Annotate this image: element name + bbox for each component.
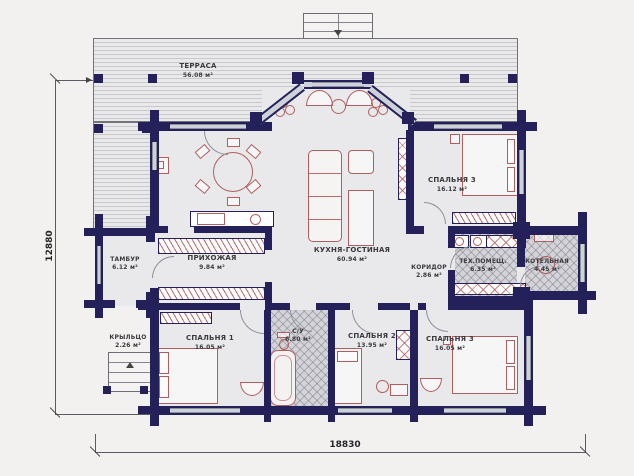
log-end-stub <box>514 406 546 415</box>
stove <box>197 213 225 225</box>
room-label-corridor: КОРИДОР 2.86 м² <box>404 264 454 280</box>
window <box>444 408 506 413</box>
window <box>434 124 502 129</box>
room-name: КОТЕЛЬНАЯ <box>525 258 569 265</box>
room-name: ТЕХ.ПОМЕЩ. <box>459 258 507 265</box>
chair <box>227 138 240 147</box>
room-name: СПАЛЬНЯ 2 <box>348 332 396 340</box>
room-area: 16.12 м² <box>437 186 467 193</box>
sofa <box>308 150 342 242</box>
pillow <box>337 351 358 362</box>
pillow <box>507 167 515 192</box>
log-end-stub <box>146 216 155 242</box>
wall <box>450 303 533 310</box>
log-end-stub <box>264 400 271 422</box>
washer-drum-2 <box>473 237 482 246</box>
log-end-stub <box>328 400 335 422</box>
nightstand <box>450 134 460 144</box>
hallway-closet <box>158 287 265 300</box>
wall <box>328 310 335 406</box>
room-label-porch: КРЫЛЬЦО 2.26 м² <box>104 334 152 350</box>
wall <box>406 226 424 234</box>
plant <box>285 105 295 115</box>
plant <box>368 107 378 117</box>
pillow <box>159 352 169 374</box>
log-end-stub <box>84 228 112 236</box>
wall <box>410 310 418 406</box>
window <box>166 124 246 129</box>
window <box>526 336 531 380</box>
room-label-boiler: КОТЕЛЬНАЯ 4.45 м² <box>518 258 576 274</box>
log-end-stub <box>410 400 418 422</box>
dim-arrow-icon <box>86 77 92 83</box>
room-name: КОРИДОР <box>411 264 447 271</box>
terrace-name: ТЕРРАСА <box>179 62 216 70</box>
room-area: 60.94 м² <box>337 256 367 263</box>
log-end-stub <box>570 291 596 300</box>
post <box>460 74 469 83</box>
room-name: ТАМБУР <box>110 256 140 263</box>
room-name: ПРИХОЖАЯ <box>187 254 236 262</box>
log-end-stub <box>138 122 170 131</box>
bathtub-inner <box>274 355 292 401</box>
room-area: 6.12 м² <box>112 264 138 271</box>
washer-drum <box>455 237 464 246</box>
bedroom3-closet <box>452 212 516 224</box>
dim-extension <box>55 414 151 415</box>
room-name: КУХНЯ-ГОСТИНАЯ <box>314 246 390 254</box>
bay-post <box>362 72 374 84</box>
dim-label-height: 12880 <box>45 218 55 274</box>
room-area: 4.45 м² <box>534 266 560 273</box>
wall <box>448 226 517 234</box>
post <box>508 74 517 83</box>
wall <box>194 226 272 233</box>
log-end-stub <box>509 122 537 131</box>
log-end-stub <box>578 212 587 238</box>
side-table <box>331 99 346 114</box>
hallway-wardrobe <box>158 238 265 254</box>
room-area: 2.26 м² <box>115 342 141 349</box>
wall <box>378 303 410 310</box>
room-label-vestibule: ТАМБУР 6.12 м² <box>98 256 152 272</box>
room-name: КРЫЛЬЦО <box>109 334 146 341</box>
kitchen-sink <box>250 214 261 225</box>
log-end-stub <box>513 287 530 304</box>
room-label-bedroom3-top: СПАЛЬНЯ 3 16.12 м² <box>408 176 496 194</box>
wall <box>264 310 271 406</box>
room-area: 16.05 м² <box>195 344 225 351</box>
room-area: 9.84 м² <box>199 264 225 271</box>
desk <box>390 384 408 396</box>
wall <box>265 226 272 250</box>
wall <box>316 303 350 310</box>
log-end-stub <box>138 303 164 310</box>
log-end-stub <box>513 222 530 239</box>
bedroom1-closet <box>160 312 212 324</box>
room-name: СПАЛЬНЯ 1 <box>186 334 234 342</box>
stairs-down-arrow-icon <box>334 30 342 36</box>
dim-line-vertical <box>55 80 56 415</box>
wall <box>448 234 455 248</box>
post <box>94 74 103 83</box>
pillow <box>506 340 515 364</box>
room-area: 6.35 м² <box>470 266 496 273</box>
room-label-bedroom2: СПАЛЬНЯ 2 13.95 м² <box>328 332 416 350</box>
wall <box>418 303 426 310</box>
window <box>312 82 364 87</box>
coffee-table <box>348 190 374 246</box>
stairs-up-arrow-icon <box>126 362 134 368</box>
room-label-bedroom1: СПАЛЬНЯ 1 16.05 м² <box>168 334 252 352</box>
chair <box>227 197 240 206</box>
window <box>338 408 392 413</box>
post <box>140 386 148 394</box>
room-label-hallway: ПРИХОЖАЯ 9.84 м² <box>172 254 252 272</box>
room-name: С/У <box>292 328 304 335</box>
window <box>170 408 240 413</box>
dim-line-horizontal <box>95 452 585 453</box>
room-area: 16.05 м² <box>435 345 465 352</box>
desk-chair <box>376 380 389 393</box>
post <box>103 386 111 394</box>
dim-label-width: 18830 <box>310 440 380 450</box>
floor-plan: 12880 18830 ТЕРРАСА 56.08 м² ТАМБУР 6.12… <box>0 0 634 476</box>
post <box>94 124 103 133</box>
window <box>519 150 524 194</box>
armchair <box>348 150 374 174</box>
room-label-utility: ТЕХ.ПОМЕЩ. 6.35 м² <box>450 258 516 274</box>
pillow <box>507 139 515 164</box>
pillow <box>506 366 515 390</box>
room-label-kitchen-living: КУХНЯ-ГОСТИНАЯ 60.94 м² <box>300 246 404 264</box>
pillow <box>159 376 169 398</box>
terrace-area: 56.08 м² <box>183 72 213 79</box>
room-area: 13.95 м² <box>357 342 387 349</box>
room-name: СПАЛЬНЯ 3 <box>428 176 476 184</box>
room-area: 6.80 м² <box>285 336 311 343</box>
room-name: СПАЛЬНЯ 3 <box>426 335 474 343</box>
room-label-bedroom3-bottom: СПАЛЬНЯ 3 16.05 м² <box>404 335 496 353</box>
room-area: 2.86 м² <box>416 272 442 279</box>
wall <box>266 303 290 310</box>
bay-post <box>292 72 304 84</box>
bay-post <box>402 112 414 124</box>
room-label-terrace: ТЕРРАСА 56.08 м² <box>150 62 246 80</box>
bay-post <box>250 112 262 124</box>
log-end-stub <box>84 300 112 308</box>
room-label-bathroom: С/У 6.80 м² <box>274 328 322 344</box>
window <box>580 244 585 282</box>
